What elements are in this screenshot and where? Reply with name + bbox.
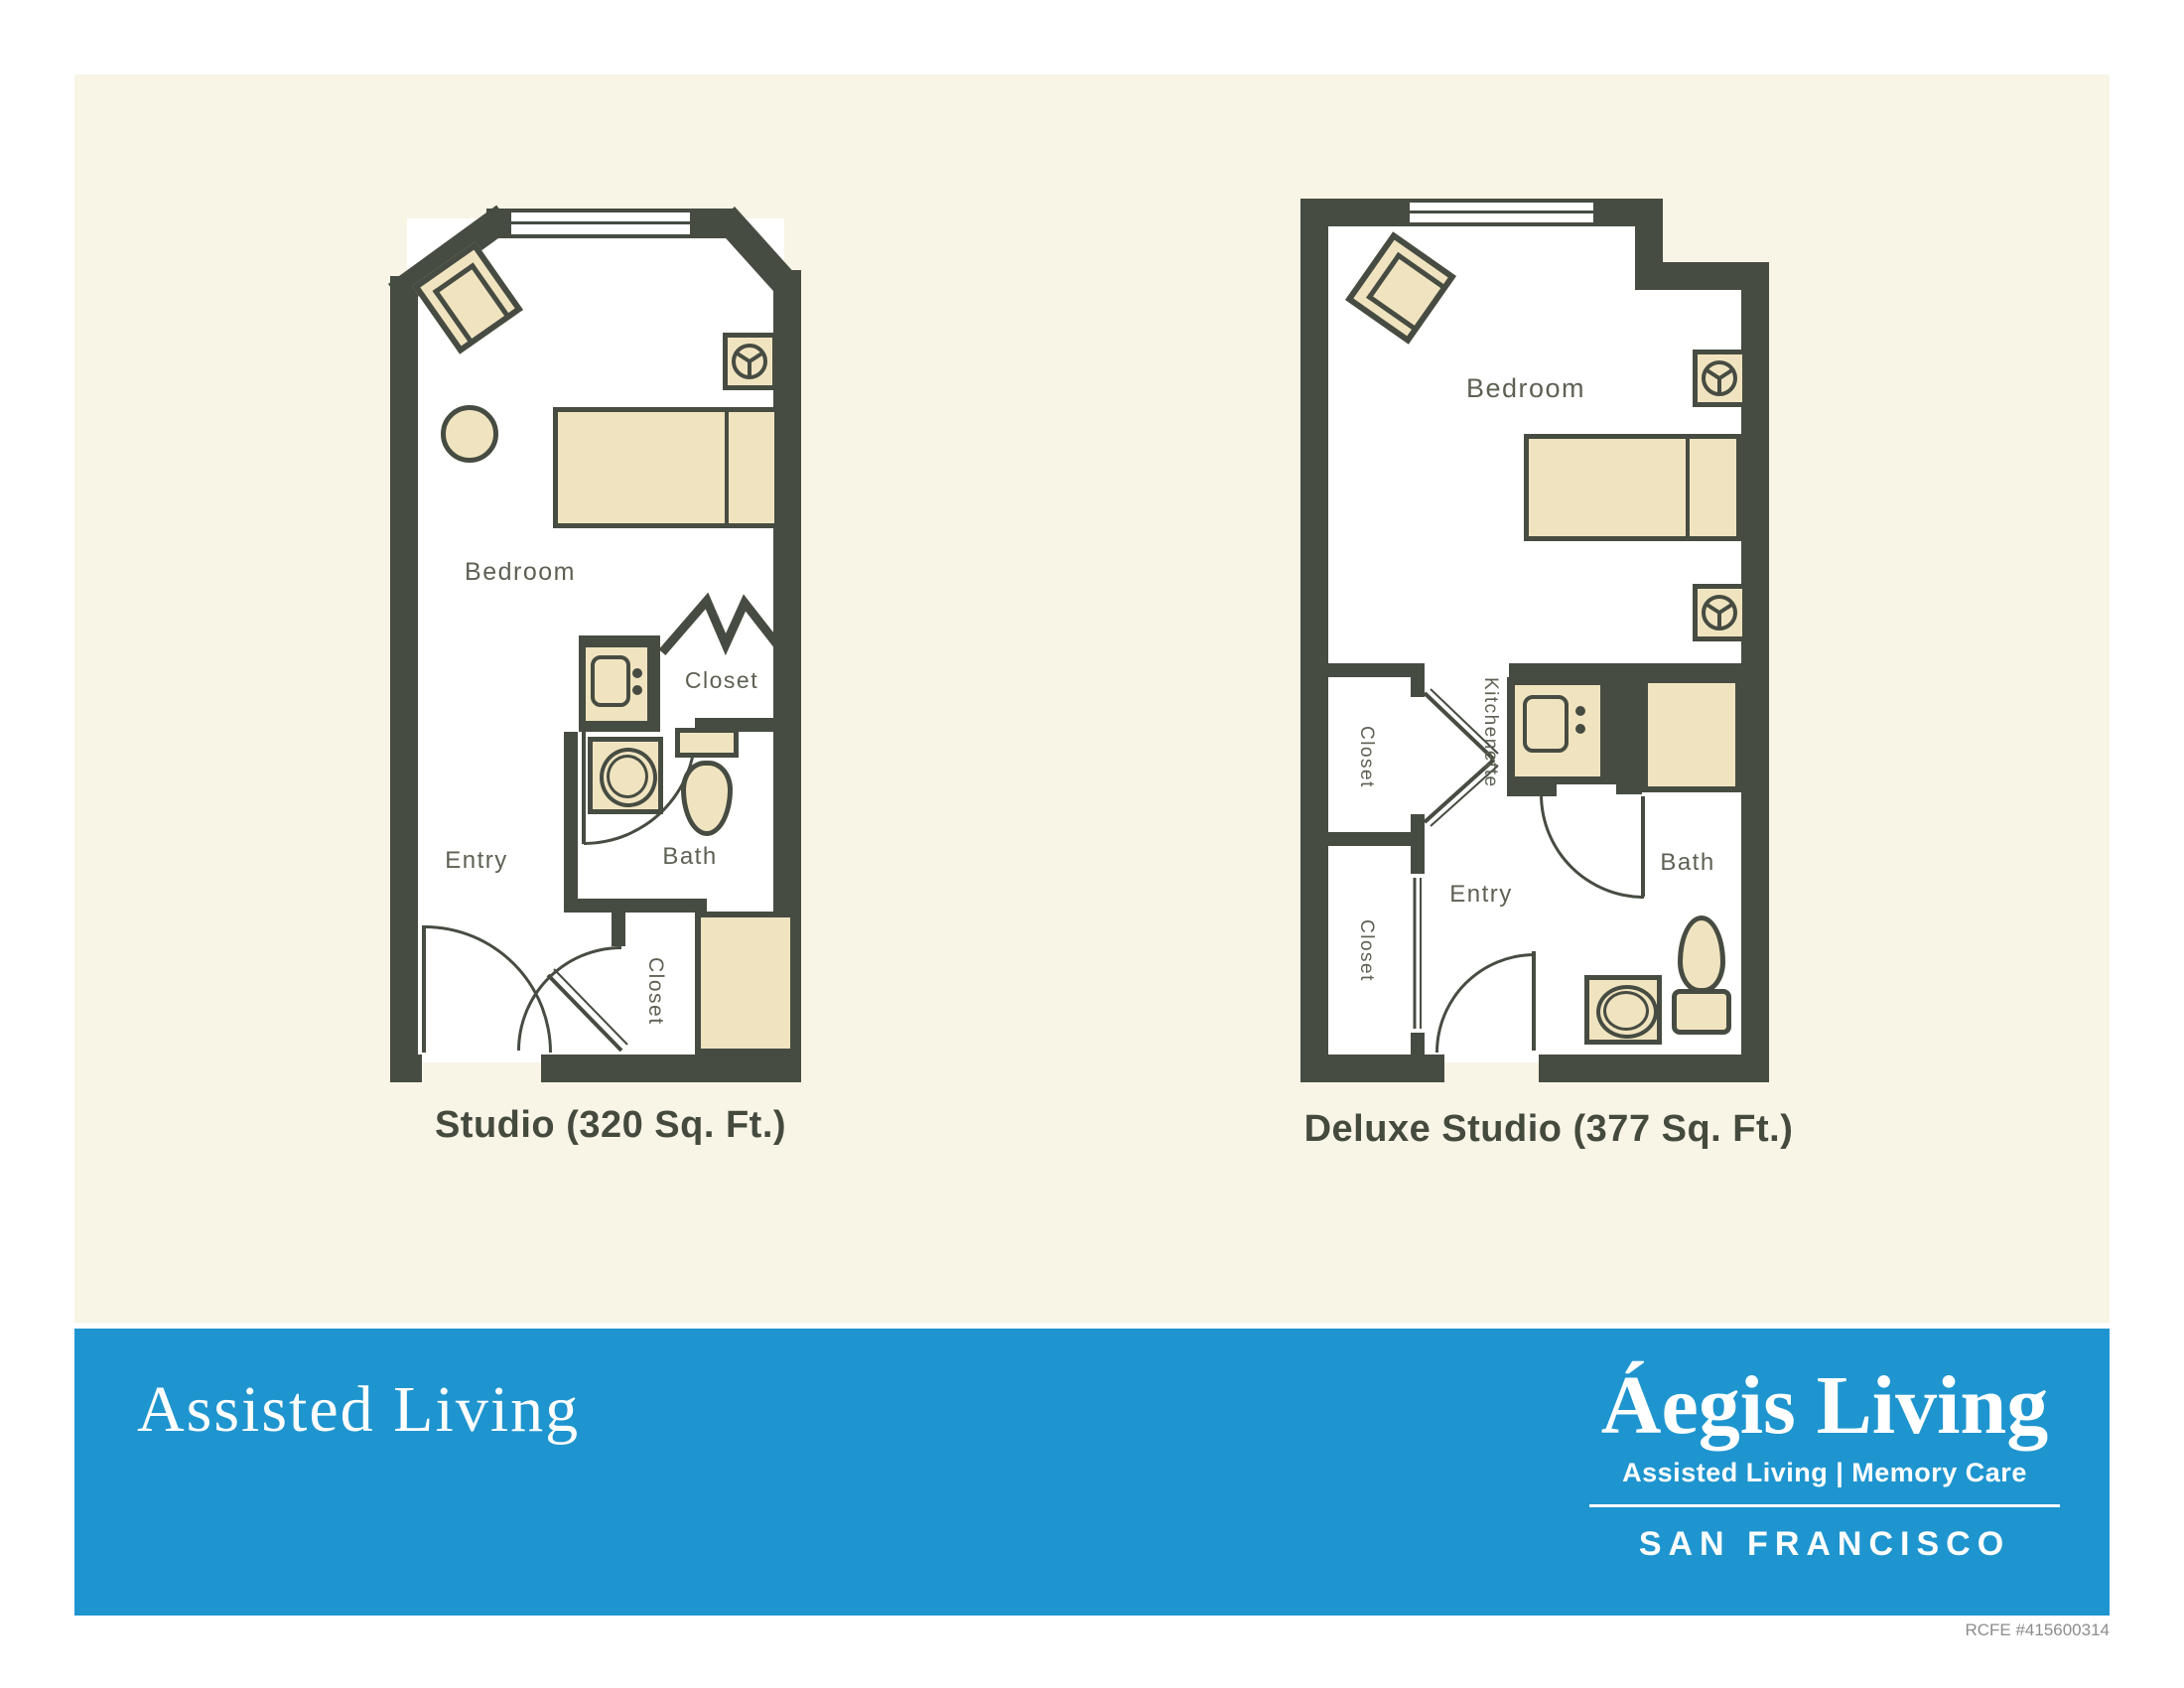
window <box>1410 199 1593 226</box>
wall <box>1539 1055 1769 1082</box>
wall <box>1411 1033 1425 1055</box>
room-label-bedroom: Bedroom <box>411 558 629 587</box>
wall <box>564 899 707 913</box>
wall <box>541 1055 791 1082</box>
room-label-closet-upper: Closet <box>652 667 791 694</box>
room-label-bedroom: Bedroom <box>1407 373 1645 404</box>
wall-step <box>1635 199 1663 290</box>
vanity-sink-icon <box>1584 975 1662 1045</box>
brand-name: Áegis Living <box>1512 1362 2137 1450</box>
room-label-bath: Bath <box>1618 849 1757 877</box>
rcfe-footnote: RCFE #415600314 <box>1965 1620 2110 1640</box>
wall <box>1328 832 1425 846</box>
room-label-kitchenette: Kitchenette <box>1479 660 1501 804</box>
logo-divider-line <box>1589 1504 2060 1507</box>
round-table-icon <box>441 405 498 463</box>
bed-icon <box>1524 434 1741 541</box>
vanity-sink-icon <box>588 737 663 814</box>
wall <box>612 913 625 946</box>
wall <box>390 276 418 1082</box>
wall <box>1411 846 1425 874</box>
shower-icon <box>1642 677 1741 792</box>
toilet-tank-icon <box>1672 989 1731 1035</box>
brand-banner: Assisted Living Áegis Living Assisted Li… <box>74 1329 2110 1616</box>
brand-tagline: Assisted Living | Memory Care <box>1512 1458 2137 1488</box>
fan-icon <box>1693 350 1747 407</box>
wall <box>1300 199 1328 1082</box>
room-label-entry: Entry <box>1412 881 1551 909</box>
room-label-entry: Entry <box>407 847 546 875</box>
bed-icon <box>553 407 779 528</box>
shower-icon <box>695 912 796 1055</box>
studio-floor-plan: Bedroom Closet Bath Entry Closet <box>387 199 804 1082</box>
wall <box>390 1055 422 1082</box>
brand-location: SAN FRANCISCO <box>1512 1525 2137 1564</box>
room-label-closet-lower: Closet <box>1355 894 1377 1008</box>
wall <box>1616 677 1642 794</box>
wall <box>1411 677 1425 697</box>
room-label-closet-lower: Closet <box>643 931 667 1051</box>
sink-icon <box>1523 695 1569 753</box>
banner-headline: Assisted Living <box>137 1372 580 1448</box>
aegis-logo: Áegis Living Assisted Living | Memory Ca… <box>1512 1362 2137 1564</box>
room-label-bath: Bath <box>620 843 759 871</box>
fan-icon <box>723 333 777 390</box>
wall <box>1509 663 1741 677</box>
toilet-tank-icon <box>675 728 739 758</box>
studio-caption: Studio (320 Sq. Ft.) <box>313 1104 908 1147</box>
bed-headboard-line <box>725 409 729 526</box>
wall <box>564 732 578 913</box>
sink-icon <box>591 655 630 707</box>
bed-headboard-line <box>1686 436 1690 539</box>
wall <box>1328 663 1425 677</box>
fan-icon <box>1693 584 1747 641</box>
deluxe-studio-floor-plan: Bedroom Kitchenette Closet Closet Entry … <box>1300 199 1769 1082</box>
deluxe-studio-caption: Deluxe Studio (377 Sq. Ft.) <box>1251 1108 1846 1151</box>
wall <box>1300 1055 1444 1082</box>
room-label-closet-upper: Closet <box>1355 700 1377 814</box>
page: Bedroom Closet Bath Entry Closet Studio … <box>0 0 2184 1688</box>
window <box>511 209 690 238</box>
